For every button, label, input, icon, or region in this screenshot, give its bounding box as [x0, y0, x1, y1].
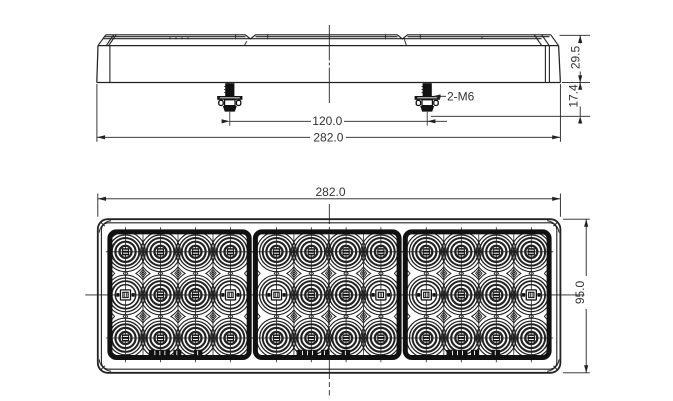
- svg-text:17.4: 17.4: [567, 84, 581, 108]
- svg-text:282.0: 282.0: [313, 131, 343, 145]
- svg-text:2-M6: 2-M6: [447, 89, 475, 103]
- svg-text:29.5: 29.5: [569, 45, 583, 69]
- svg-text:95.0: 95.0: [573, 280, 587, 304]
- svg-text:282.0: 282.0: [315, 185, 345, 199]
- svg-text:120.0: 120.0: [312, 114, 342, 128]
